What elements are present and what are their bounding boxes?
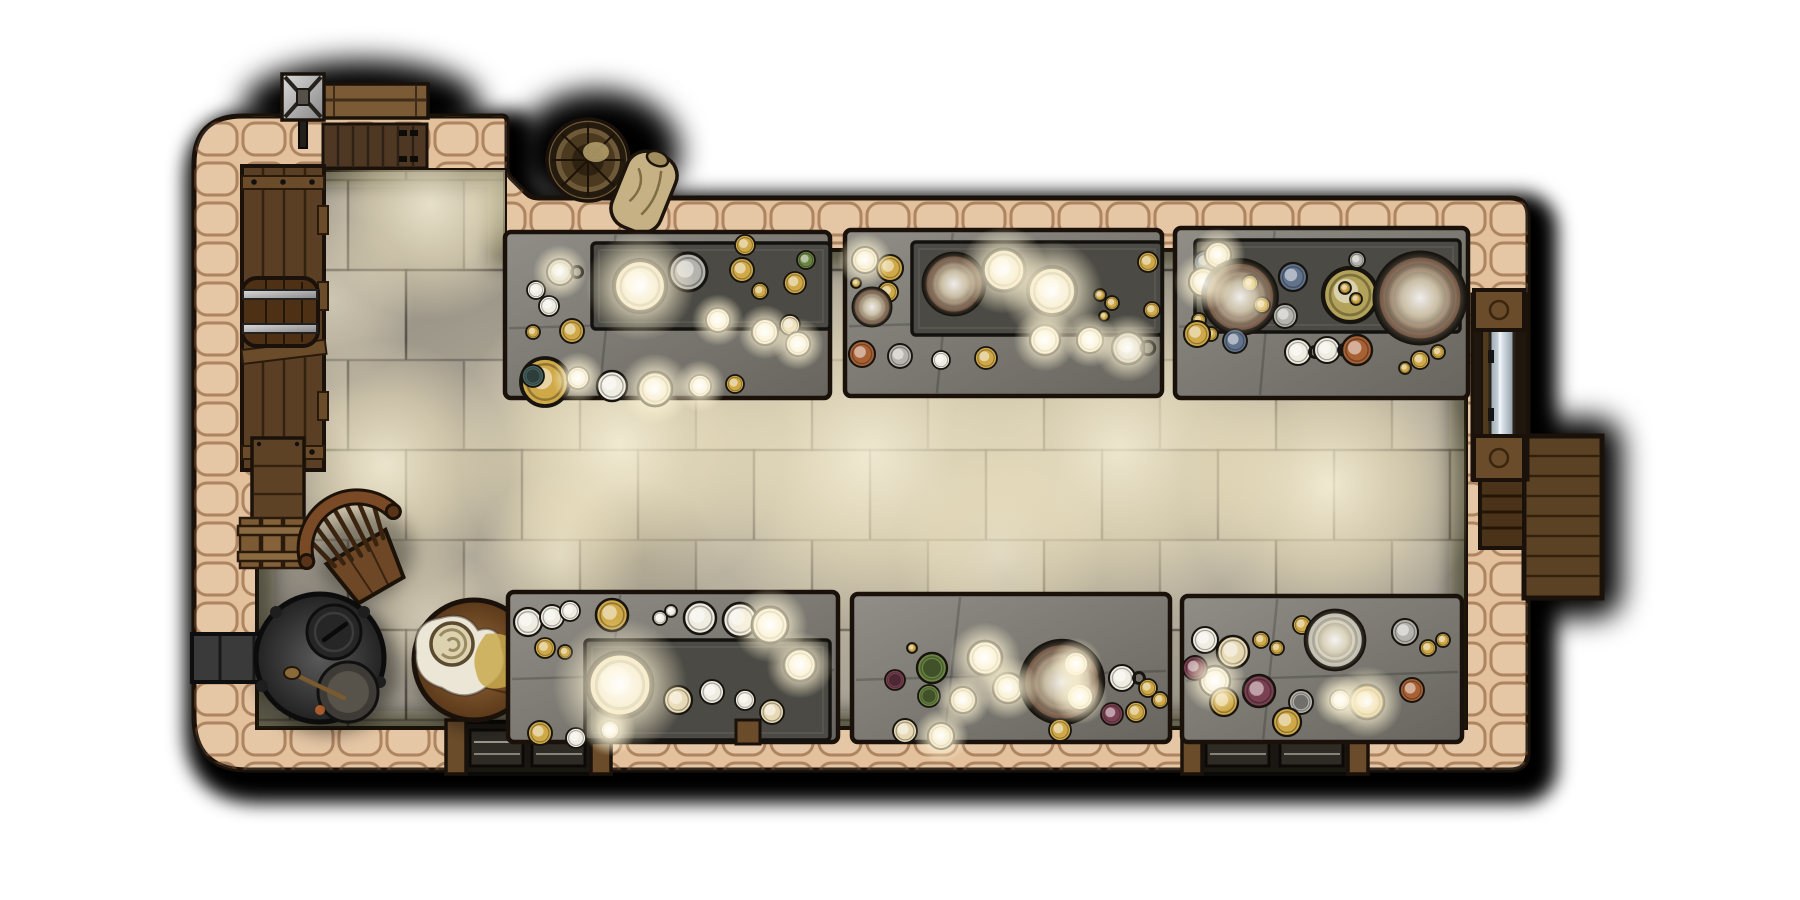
map-canvas [0,0,1800,900]
basket-contents [583,142,609,162]
box [736,720,760,744]
candle-glow [1374,252,1466,344]
door-hinge [1488,350,1494,363]
barrel-band [243,290,317,299]
coins [665,605,677,617]
plate [1392,619,1418,645]
plate [535,638,555,658]
plate [893,719,917,743]
plate [888,344,912,368]
plate [735,235,755,255]
coins [726,375,744,393]
candle-glow [584,704,636,756]
bowl [522,365,544,387]
candle-glow [585,231,694,340]
plate [1273,708,1301,736]
coins [1350,293,1362,305]
plate [560,601,580,621]
candle-glow [552,352,604,404]
candle-glow [692,294,744,346]
plate [735,690,755,710]
candle-glow [1053,670,1108,725]
plate [932,351,950,369]
plate [1192,627,1218,653]
candle-glow [1014,309,1077,372]
wall-hatch [323,124,427,168]
coins [1152,692,1168,708]
candle-glow [674,360,726,412]
coins [1339,282,1351,294]
coins [1411,351,1429,369]
plate [560,319,584,343]
coins [1105,296,1119,310]
coins [1399,362,1411,374]
plate [797,251,815,269]
plate [1323,268,1377,322]
plate [514,608,542,636]
plate [700,680,724,704]
door-frame-block [1474,290,1524,330]
plate [784,272,806,294]
plate [849,341,875,367]
battlemap-stage [0,0,1800,900]
bowl [917,653,947,683]
coins [1420,640,1436,656]
bowl [885,670,905,690]
plate [760,700,784,724]
wall-bench [322,84,428,118]
door-frame-block [1474,436,1524,480]
plate [528,721,552,745]
coins [907,643,917,653]
ember-glow [315,705,325,715]
coins [1253,632,1269,648]
plate [1243,675,1275,707]
plate [1184,321,1210,347]
coins [1431,345,1445,359]
crate [252,438,304,528]
door-post [446,720,466,774]
plate [1400,678,1424,702]
right-door [1472,290,1528,480]
porch [1524,436,1602,598]
plate [975,347,997,369]
coins [526,325,540,339]
candle-glow [533,245,588,300]
plate [1349,252,1365,268]
plate [1126,702,1146,722]
candle-glow [914,709,969,764]
candle-glow [852,287,892,327]
candle-glow [766,631,833,698]
plate [1342,335,1372,365]
coins [1144,302,1160,318]
plate [1279,263,1307,291]
porch-step-ladder [1480,480,1524,548]
barrel [242,278,318,346]
plate [730,258,754,282]
candle-glow [1184,650,1247,713]
barrel-band [243,324,317,333]
stool [238,518,306,568]
candle-glow [1314,674,1366,726]
coins [1270,641,1284,655]
sign-emblem [297,89,309,105]
plate [1138,252,1158,272]
candle-glow [1305,610,1366,671]
plate [684,602,716,634]
coins [752,283,768,299]
candle-glow [1202,259,1278,335]
plate [1273,304,1297,328]
coins [1436,633,1450,647]
rolled-bundle [431,623,473,665]
candle-glow [838,233,893,288]
candle-glow [772,318,824,370]
door-hinge [1488,408,1494,421]
candle-glow [1094,314,1161,381]
